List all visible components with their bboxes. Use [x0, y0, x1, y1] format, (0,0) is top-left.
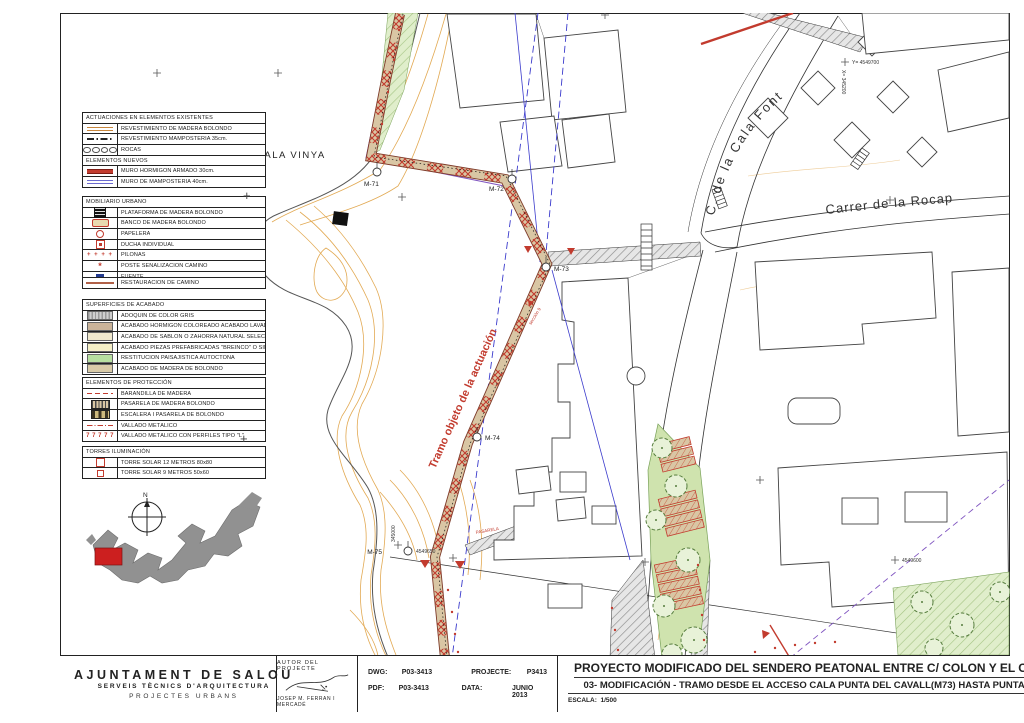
masonry-cladding-symbol — [83, 134, 118, 144]
legend-row: TORRE SOLAR 9 METROS 50x60 — [83, 467, 265, 478]
data-label: DATA: — [462, 685, 512, 699]
legend-row: REVESTIMIENTO DE MADERA BOLONDO — [83, 123, 265, 134]
bolondo-wood-swatch — [83, 364, 118, 374]
street-label-cala-font: C. de la Cala Font — [702, 88, 786, 217]
grid-cross: + — [240, 434, 248, 444]
landscape-restoration-swatch — [83, 353, 118, 363]
north-label: N — [143, 492, 148, 499]
marker-label-m74: M-74 — [485, 435, 500, 442]
bollards-icon: + + + + — [83, 250, 118, 260]
legend-title: SUPERFICIES DE ACABADO — [83, 300, 265, 310]
north-compass: N — [128, 492, 166, 536]
author-signature — [277, 672, 357, 696]
legend-protection-elements: ELEMENTOS DE PROTECCIÓN BARANDILLA DE MA… — [82, 377, 266, 442]
legend-urban-furniture: MOBILIARIO URBANO PLATAFORMA DE MADERA B… — [82, 196, 266, 283]
title-block-project-section: PROYECTO MODIFICADO DEL SENDERO PEATONAL… — [558, 656, 1024, 712]
signpost-icon: * — [83, 261, 118, 271]
legend-row: DUCHA INDIVIDUAL — [83, 239, 265, 250]
marker-label-m72: M-72 — [489, 186, 504, 193]
legend-row: VALLADO METÁLICO — [83, 420, 265, 431]
marker-label-m75: M-75 — [367, 549, 382, 556]
wood-railing-symbol — [83, 389, 118, 399]
legend-row: TORRE SOLAR 12 METROS 80x80 — [83, 457, 265, 468]
stairs-walkway-symbol — [83, 410, 118, 420]
legend-row: PASARELA DE MADERA BOLONDO — [83, 398, 265, 409]
legend-row: PAPELERA — [83, 228, 265, 239]
pdf-value: P03-3413 — [399, 685, 462, 699]
legend-title: MOBILIARIO URBANO — [83, 197, 265, 207]
legend-row: ADOQUÍN DE COLOR GRIS — [83, 310, 265, 321]
legend-row: PLATAFORMA DE MADERA BOLONDO — [83, 207, 265, 218]
legend-row: ROCAS — [83, 144, 265, 155]
gray-paver-swatch — [83, 311, 118, 321]
legend-row: MURO HORMIGÓN ARMADO 30cm. — [83, 165, 265, 176]
legend-row: BARANDILLA DE MADERA — [83, 388, 265, 399]
shower-icon — [83, 240, 118, 250]
marker-label-m73: M-73 — [554, 266, 569, 273]
dwg-value: P03-3413 — [402, 669, 471, 676]
data-value: JUNIO 2013 — [512, 685, 547, 699]
metal-fence-symbol — [83, 421, 118, 431]
legend-row: *POSTE SEÑALIZACIÓN CAMINO — [83, 260, 265, 271]
colored-concrete-swatch — [83, 321, 118, 331]
solar-tower-9-icon — [83, 468, 118, 478]
project-title: PROYECTO MODIFICADO DEL SENDERO PEATONAL… — [574, 658, 1024, 678]
legend-lighting-towers: TORRES ILUMINACIÓN TORRE SOLAR 12 METROS… — [82, 446, 266, 479]
legend-title: ACTUACIONES EN ELEMENTOS EXISTENTES — [83, 113, 265, 123]
projecte-label: PROJECTE: — [471, 669, 527, 676]
rocks-symbol — [83, 145, 118, 155]
projecte-value: P3413 — [527, 669, 547, 676]
dwg-label: DWG: — [368, 669, 402, 676]
legend-row: RESTAURACIÓN DE CAMINO — [83, 278, 265, 288]
author-name: JOSEP M. FERRAN I MERCADÉ — [277, 696, 357, 708]
cove-label: CALA VINYA — [256, 150, 326, 161]
legend-title: TORRES ILUMINACIÓN — [83, 447, 265, 457]
pdf-label: PDF: — [368, 685, 399, 699]
legend-title: ELEMENTOS DE PROTECCIÓN — [83, 378, 265, 388]
legend-finish-surfaces: SUPERFICIES DE ACABADO ADOQUÍN DE COLOR … — [82, 299, 266, 375]
wood-walkway-symbol — [83, 399, 118, 409]
coord-y-left: 4549650 — [416, 549, 436, 555]
title-block-author-section: AUTOR DEL PROJECTE JOSEP M. FERRAN I MER… — [277, 656, 358, 712]
legend-row: ACABADO PIEZAS PREFABRICADAS "BREINCO" O… — [83, 342, 265, 353]
project-subtitle: 03- MODIFICACIÓN - TRAMO DESDE EL ACCESO… — [568, 678, 1024, 694]
coord-y-top: Y= 4549700 — [852, 60, 879, 66]
legend-row: ACABADO DE SABLÓN O ZAHORRA NATURAL SELE… — [83, 331, 265, 342]
key-map — [86, 492, 262, 583]
precast-swatch — [83, 343, 118, 353]
legend-row: BANCO DE MADERA BOLONDO — [83, 217, 265, 228]
litter-bin-icon — [83, 229, 118, 239]
wood-cladding-symbol — [83, 124, 118, 134]
legend-row: ACABADO HORMIGÓN COLOREADO ACABADO LAVAD… — [83, 320, 265, 331]
path-restoration-symbol — [83, 278, 118, 288]
plan-sheet: M-71 M-72 M-73 M-74 M-75 Y= 4549700 X= 3… — [0, 0, 1024, 723]
legend-existing-elements: ACTUACIONES EN ELEMENTOS EXISTENTES REVE… — [82, 112, 266, 188]
legend-row: 7 7 7 7 7VALLADO METÁLICO CON PERFILES T… — [83, 430, 265, 441]
metal-fence-L-symbol: 7 7 7 7 7 — [83, 431, 118, 441]
wood-platform-symbol — [332, 211, 349, 226]
sablon-swatch — [83, 332, 118, 342]
legend-row: ESCALERA I PASARELA DE BOLONDO — [83, 409, 265, 420]
marker-label-m71: M-71 — [364, 181, 379, 188]
title-block-file-section: DWG: P03-3413 PROJECTE: P3413 PDF: P03-3… — [358, 656, 558, 712]
concrete-wall-symbol — [83, 166, 118, 176]
legend-row: + + + +PILONAS — [83, 249, 265, 260]
key-map-location-highlight — [95, 548, 122, 565]
coord-x-left: 345000 — [391, 525, 397, 542]
wood-platform-icon — [83, 208, 118, 218]
legend-subtitle: ELEMENTOS NUEVOS — [83, 158, 148, 164]
legend-row: MURO DE MAMPOSTERÍA 40cm. — [83, 176, 265, 187]
org-name: AJUNTAMENT DE SALOU — [74, 668, 294, 682]
legend-row: RESTITUCIÓN PAISAJÍSTICA AUTÓCTONA — [83, 352, 265, 363]
scale-value: 1/500 — [601, 697, 617, 704]
legend-path-restoration: RESTAURACIÓN DE CAMINO — [82, 277, 266, 289]
org-dept: SERVEIS TÈCNICS D'ARQUITECTURA — [74, 683, 294, 690]
scale-label: ESCALA: — [568, 697, 597, 704]
legend-row: ACABADO DE MADERA DE BOLONDO — [83, 363, 265, 374]
solar-tower-12-icon — [83, 458, 118, 468]
bench-icon — [83, 218, 118, 228]
coord-x-top: X= 345200 — [840, 70, 846, 95]
legend-row: REVESTIMIENTO MAMPOSTERÍA 35cm. — [83, 133, 265, 144]
title-block: AJUNTAMENT DE SALOU SERVEIS TÈCNICS D'AR… — [60, 655, 1010, 712]
org-unit: PROJECTES URBANS — [74, 693, 294, 700]
author-title: AUTOR DEL PROJECTE — [277, 660, 357, 672]
title-block-org-section: AJUNTAMENT DE SALOU SERVEIS TÈCNICS D'AR… — [60, 656, 277, 712]
masonry-wall-symbol — [83, 177, 118, 187]
svg-text:Carrer de la Rocap: Carrer de la Rocap — [825, 190, 954, 217]
grid-cross: + — [243, 191, 251, 201]
coord-y-right: 4549600 — [902, 558, 922, 564]
svg-text:C. de la Cala Font: C. de la Cala Font — [702, 88, 786, 217]
street-label-rocaplana: Carrer de la Rocap — [825, 190, 954, 217]
